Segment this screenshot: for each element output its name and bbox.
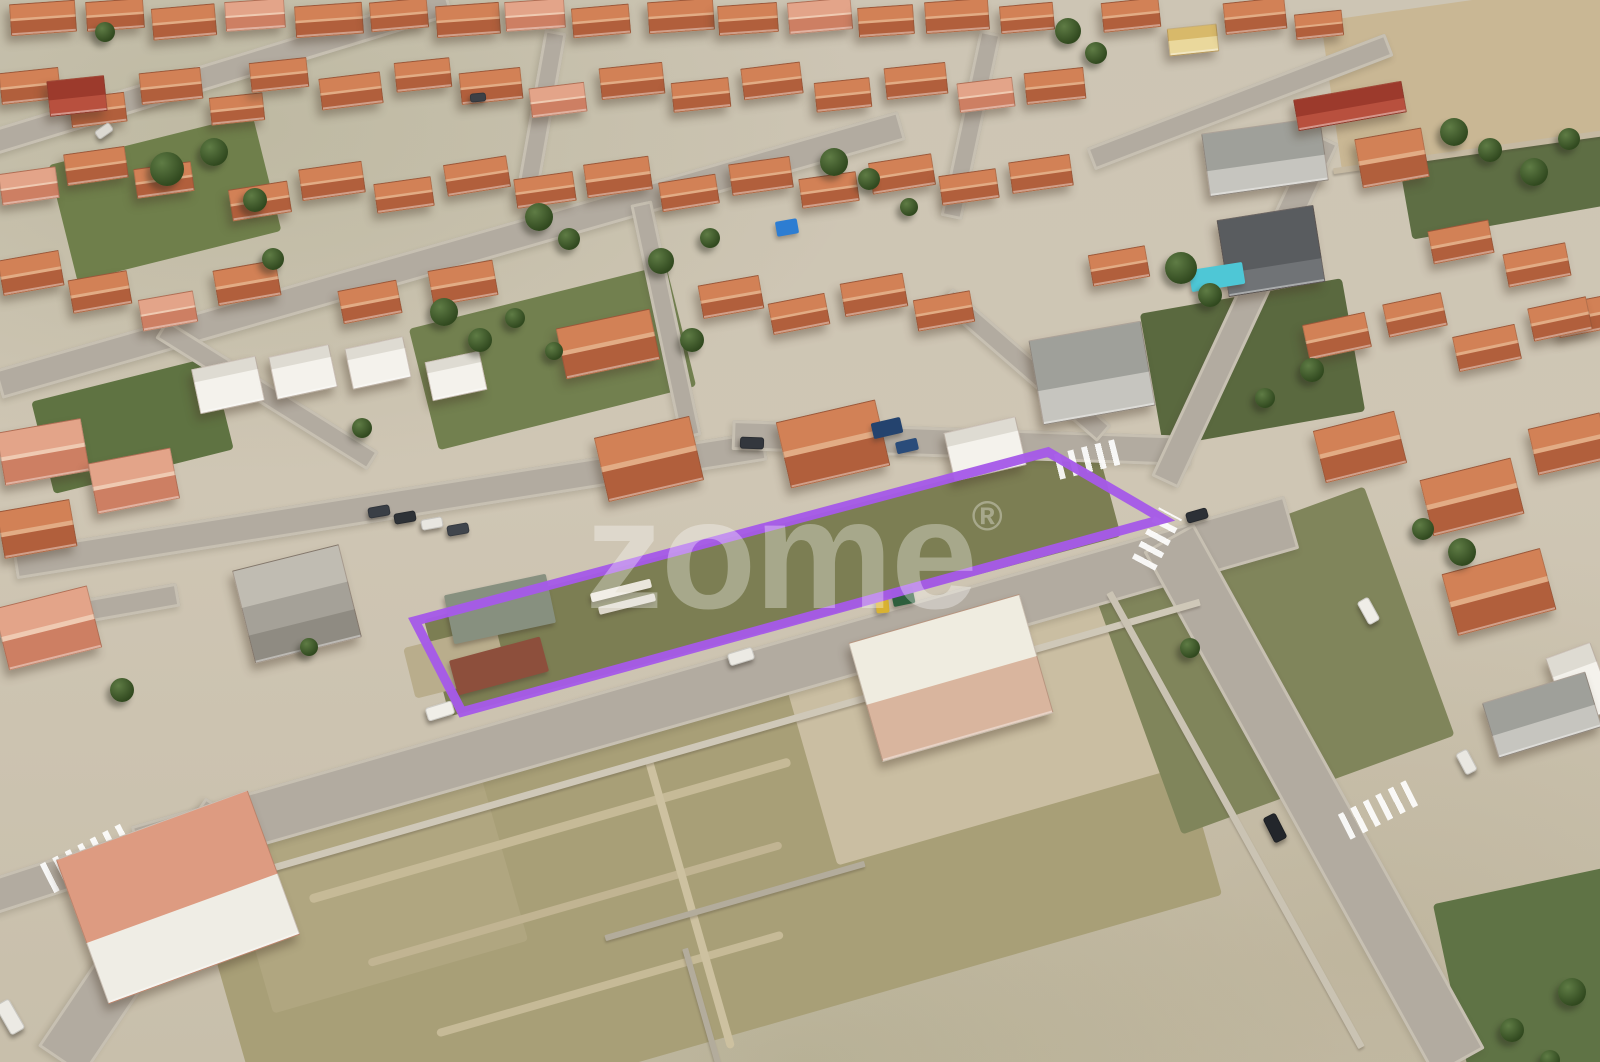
car xyxy=(367,504,391,519)
car xyxy=(727,646,756,666)
car xyxy=(740,437,764,450)
car xyxy=(420,516,444,531)
car xyxy=(94,122,114,141)
car xyxy=(425,700,456,722)
car xyxy=(1185,507,1209,524)
car xyxy=(1357,596,1381,625)
car xyxy=(1455,748,1478,775)
car xyxy=(0,998,25,1035)
aerial-photo: zome® xyxy=(0,0,1600,1062)
car xyxy=(446,522,470,537)
car xyxy=(393,510,417,525)
car xyxy=(470,92,487,102)
car xyxy=(1262,812,1287,843)
vehicles-layer xyxy=(0,0,1600,1062)
